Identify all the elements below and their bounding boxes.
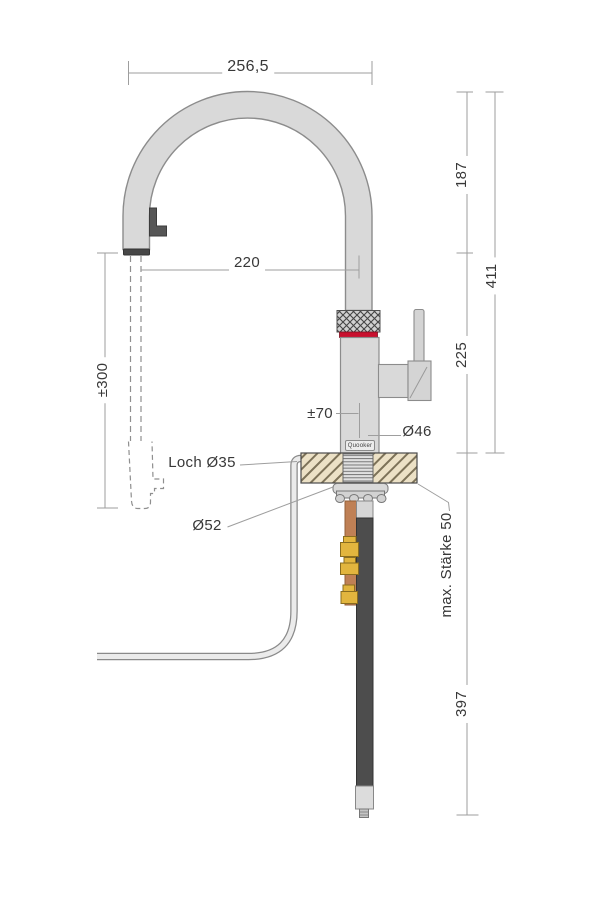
dim-below-counter: 397 [454,685,471,723]
extended-hose-dashes [131,256,142,441]
red-ring [340,332,378,338]
dim-upper-segment: 187 [454,156,471,194]
drawing-linework [0,0,600,900]
pullout-hose [97,459,312,657]
leader-hole [240,462,297,466]
brass-fitting-2 [341,558,359,575]
dim-swivel: ±70 [307,406,333,423]
hose-end-fitting [356,786,374,809]
brand-plate: Quooker [345,440,375,451]
label-max-thickness: max. Stärke 50 [439,512,456,617]
handle-arm [379,365,409,398]
label-hole: Loch Ø35 [168,455,235,472]
dim-flange: Ø52 [192,518,221,535]
dim-lower-segment: 225 [454,336,471,374]
faucet-arch [123,91,372,310]
hose-nipple [360,809,369,818]
handle-lever [414,310,424,363]
extended-head-outline [129,442,164,509]
dim-total-above: 411 [484,258,501,295]
hose-connector [357,501,374,518]
flex-hose [357,518,374,786]
dim-top-width: 256,5 [222,58,274,76]
dim-hose-extension: ±300 [95,357,112,403]
dim-reach: 220 [229,255,265,272]
knurled-ring [337,311,380,333]
brand-logo-text: Quooker [348,443,372,449]
spray-head-aerator [124,249,150,255]
leader-flange [228,487,334,527]
brass-fitting-1 [341,537,359,557]
technical-drawing: 256,5 220 ±300 ±70 Ø46 Loch Ø35 Ø52 max.… [0,0,600,900]
leader-max-thickness [418,484,450,511]
spray-head-grip [150,208,167,236]
threaded-shank [343,454,373,483]
dim-body-diameter: Ø46 [402,424,431,441]
